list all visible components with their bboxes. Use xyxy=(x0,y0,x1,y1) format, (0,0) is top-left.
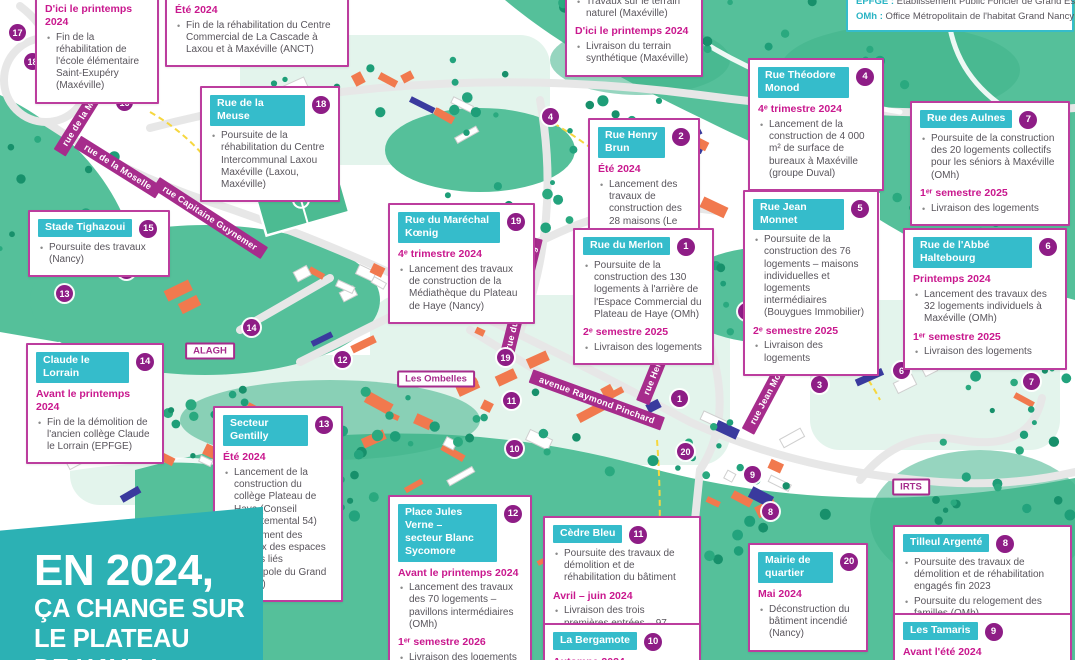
callout-title-row: Rue Henry Brun2 xyxy=(598,127,690,158)
callout-title-row: Rue Théodore Monod4 xyxy=(758,67,874,98)
callout-title-row: Rue des Aulnes7 xyxy=(920,110,1060,129)
bullet-dot: • xyxy=(915,346,924,358)
callout-date-heading: 4ᵉ trimestre 2024 xyxy=(398,248,525,261)
callout-bullet: •Lancement des travaux des 32 logements … xyxy=(915,289,1057,326)
bullet-dot: • xyxy=(47,32,56,93)
callout-title: Les Tamaris xyxy=(903,622,978,640)
callout-number-badge: 20 xyxy=(840,553,858,571)
callout-bullet: •Livraison des logements xyxy=(755,340,869,364)
map-badge-3: 3 xyxy=(811,376,828,393)
hero-line-4: DE HAYE ! xyxy=(34,656,263,660)
bullet-dot: • xyxy=(577,41,586,65)
bullet-text: Poursuite de la construction des 76 loge… xyxy=(764,234,869,319)
bullet-dot: • xyxy=(177,20,186,57)
map-area-label: IRTS xyxy=(892,479,930,496)
callout-claude-le-lorrain: Claude le Lorrain14Avant le printemps 20… xyxy=(26,343,164,464)
bullet-text: Déconstruction du bâtiment incendié (Nan… xyxy=(769,604,858,641)
legend-abbreviation: EPFGE : xyxy=(856,0,894,7)
bullet-dot: • xyxy=(38,417,47,454)
callout-bullet: •Travaux sur le terrain naturel (Maxévil… xyxy=(577,0,693,20)
callout-number-badge: 9 xyxy=(985,623,1003,641)
callout-title: Rue des Aulnes xyxy=(920,110,1012,128)
bullet-text: Lancement des travaux des 70 logements –… xyxy=(409,582,522,631)
callout-number-badge: 10 xyxy=(644,633,662,651)
callout-bullet: •Livraison des logements xyxy=(922,203,1060,215)
callout-rue-du-merlon: Rue du Merlon1•Poursuite de la construct… xyxy=(573,228,714,365)
callout-number-badge: 19 xyxy=(507,213,525,231)
legend-definition: Office Métropolitain de l'habitat Grand … xyxy=(883,11,1074,22)
legend-definition: Établissement Public Foncier de Grand Es… xyxy=(894,0,1075,7)
callout-title: Rue de la Meuse xyxy=(210,95,305,126)
callout-title-row: Secteur Gentilly13 xyxy=(223,415,333,446)
callout-mairie-de-quartier: Mairie de quartier20Mai 2024•Déconstruct… xyxy=(748,543,868,652)
callout-number-badge: 13 xyxy=(315,416,333,434)
bullet-text: Poursuite de la construction des 130 log… xyxy=(594,260,704,321)
callout-date-heading: 2ᵉ semestre 2025 xyxy=(753,325,869,338)
callout-date-heading: Printemps 2024 xyxy=(913,273,1057,286)
callout-title: Rue Théodore Monod xyxy=(758,67,849,98)
plateau-de-haye-map-poster: EPFGE : Établissement Public Foncier de … xyxy=(0,0,1075,660)
callout-la-cascade: Été 2024•Fin de la réhabilitation du Cen… xyxy=(165,0,349,67)
callout-stade-tighazoui: Stade Tighazoui15•Poursuite des travaux … xyxy=(28,210,170,277)
callout-les-tamaris: Les Tamaris9Avant l'été 2024•Désamiantag… xyxy=(893,613,1072,660)
callout-number-badge: 4 xyxy=(856,68,874,86)
callout-title-row: Rue Jean Monnet5 xyxy=(753,199,869,230)
bullet-text: Poursuite des travaux de démolition et d… xyxy=(914,557,1062,594)
callout-bullet: •Livraison des logements xyxy=(400,652,522,660)
callout-rue-theodore-monod: Rue Théodore Monod44ᵉ trimestre 2024•Lan… xyxy=(748,58,884,191)
callout-title: Secteur Gentilly xyxy=(223,415,308,446)
callout-number-badge: 8 xyxy=(996,535,1014,553)
callout-number-badge: 12 xyxy=(504,505,522,523)
bullet-text: Lancement des travaux de construction de… xyxy=(409,264,525,313)
legend-box: EPFGE : Établissement Public Foncier de … xyxy=(846,0,1074,32)
bullet-text: Fin de la réhabilitation du Centre Comme… xyxy=(186,20,339,57)
hero-line-3: LE PLATEAU xyxy=(34,626,263,653)
callout-date-heading: Mai 2024 xyxy=(758,588,858,601)
map-badge-9: 9 xyxy=(744,466,761,483)
callout-date-heading: 1ᵉʳ semestre 2025 xyxy=(913,331,1057,344)
bullet-dot: • xyxy=(915,289,924,326)
callout-la-bergamote: La Bergamote10Automne 2024 xyxy=(543,623,701,660)
map-badge-14: 14 xyxy=(243,319,260,336)
bullet-text: Poursuite des travaux (Nancy) xyxy=(49,242,160,266)
map-badge-20: 20 xyxy=(677,443,694,460)
callout-rue-du-marechal-koenig: Rue du Maréchal Kœnig194ᵉ trimestre 2024… xyxy=(388,203,535,324)
callout-title-row: La Bergamote10 xyxy=(553,632,691,651)
callout-number-badge: 5 xyxy=(851,200,869,218)
callout-bullet: •Lancement des travaux des 70 logements … xyxy=(400,582,522,631)
callout-bullet: •Poursuite des travaux (Nancy) xyxy=(40,242,160,266)
bullet-dot: • xyxy=(922,203,931,215)
callout-bullet: •Poursuite de la construction des 20 log… xyxy=(922,133,1060,182)
bullet-text: Livraison des logements xyxy=(594,342,704,354)
callout-rue-de-la-meuse: Rue de la Meuse18•Poursuite de la réhabi… xyxy=(200,86,340,202)
legend-abbreviation: OMh : xyxy=(856,11,883,22)
callout-title-row: Mairie de quartier20 xyxy=(758,552,858,583)
map-badge-11: 11 xyxy=(503,392,520,409)
callout-bullet: •Poursuite de la construction des 130 lo… xyxy=(585,260,704,321)
callout-title: Rue du Maréchal Kœnig xyxy=(398,212,500,243)
bullet-text: Livraison des logements xyxy=(409,652,522,660)
map-badge-13: 13 xyxy=(56,285,73,302)
bullet-text: Lancement des travaux des 32 logements i… xyxy=(924,289,1057,326)
callout-number-badge: 14 xyxy=(136,353,154,371)
callout-title: Mairie de quartier xyxy=(758,552,833,583)
callout-title-row: Rue du Merlon1 xyxy=(583,237,704,256)
callout-number-badge: 11 xyxy=(629,526,647,544)
bullet-text: Fin de la réhabilitation de l'école élém… xyxy=(56,32,149,93)
callout-date-heading: Été 2024 xyxy=(223,451,333,464)
bullet-dot: • xyxy=(400,264,409,313)
bullet-dot: • xyxy=(400,582,409,631)
callout-bullet: •Poursuite des travaux de démolition et … xyxy=(555,548,691,585)
callout-title-row: Tilleul Argenté8 xyxy=(903,534,1062,553)
callout-date-heading: 4ᵉ trimestre 2024 xyxy=(758,103,874,116)
callout-title: Claude le Lorrain xyxy=(36,352,129,383)
callout-terrain-naturel: •Travaux sur le terrain naturel (Maxévil… xyxy=(565,0,703,77)
callout-number-badge: 6 xyxy=(1039,238,1057,256)
bullet-text: Poursuite des travaux de démolition et d… xyxy=(564,548,691,585)
callout-rue-de-l-abbe-haltebourg: Rue de l'Abbé Haltebourg6Printemps 2024•… xyxy=(903,228,1067,370)
callout-date-heading: 1ᵉʳ semestre 2025 xyxy=(920,187,1060,200)
bullet-dot: • xyxy=(755,234,764,319)
bullet-dot: • xyxy=(760,119,769,180)
callout-title: Cèdre Bleu xyxy=(553,525,622,543)
map-area-label: ALAGH xyxy=(185,343,235,360)
callout-title: Rue Henry Brun xyxy=(598,127,665,158)
bullet-dot: • xyxy=(577,0,586,20)
callout-date-heading: Avant le printemps 2024 xyxy=(398,567,522,580)
callout-title-row: Cèdre Bleu11 xyxy=(553,525,691,544)
callout-title: Stade Tighazoui xyxy=(38,219,132,237)
callout-date-heading: Été 2024 xyxy=(598,163,690,176)
map-area-label: Les Ombelles xyxy=(397,371,475,388)
bullet-text: Livraison des logements xyxy=(924,346,1057,358)
callout-bullet: •Lancement de la construction de 4 000 m… xyxy=(760,119,874,180)
callout-title: Place Jules Verne –secteur Blanc Sycomor… xyxy=(398,504,497,562)
callout-date-heading: Automne 2024 xyxy=(553,656,691,660)
bullet-text: Poursuite de la réhabilitation du Centre… xyxy=(221,130,330,191)
callout-bullet: •Livraison des logements xyxy=(915,346,1057,358)
callout-date-heading: Avant le printemps 2024 xyxy=(36,388,154,414)
callout-date-heading: 1ᵉʳ semestre 2026 xyxy=(398,636,522,649)
bullet-text: Livraison des logements xyxy=(931,203,1060,215)
bullet-text: Travaux sur le terrain naturel (Maxévill… xyxy=(586,0,693,20)
map-badge-8: 8 xyxy=(762,503,779,520)
callout-bullet: •Déconstruction du bâtiment incendié (Na… xyxy=(760,604,858,641)
callout-title-row: Rue du Maréchal Kœnig19 xyxy=(398,212,525,243)
map-badge-19: 19 xyxy=(497,349,514,366)
callout-bullet: •Poursuite des travaux de démolition et … xyxy=(905,557,1062,594)
callout-date-heading: D'ici le printemps 2024 xyxy=(575,25,693,38)
callout-title-row: Rue de la Meuse18 xyxy=(210,95,330,126)
callout-number-badge: 15 xyxy=(139,220,157,238)
hero-line-2: ÇA CHANGE SUR xyxy=(34,596,263,623)
callout-number-badge: 2 xyxy=(672,128,690,146)
bullet-dot: • xyxy=(555,548,564,585)
bullet-text: Livraison des logements xyxy=(764,340,869,364)
callout-rue-jean-monnet: Rue Jean Monnet5•Poursuite de la constru… xyxy=(743,190,879,376)
callout-date-heading: Été 2024 xyxy=(175,4,339,17)
callout-title: Rue de l'Abbé Haltebourg xyxy=(913,237,1032,268)
map-badge-17: 17 xyxy=(9,24,26,41)
map-badge-1: 1 xyxy=(671,390,688,407)
bullet-dot: • xyxy=(212,130,221,191)
callout-title-row: Les Tamaris9 xyxy=(903,622,1062,641)
callout-title: Rue du Merlon xyxy=(583,237,670,255)
map-badge-7: 7 xyxy=(1023,373,1040,390)
bullet-dot: • xyxy=(585,342,594,354)
callout-place-jules-verne: Place Jules Verne –secteur Blanc Sycomor… xyxy=(388,495,532,660)
bullet-dot: • xyxy=(760,604,769,641)
callout-title-row: Place Jules Verne –secteur Blanc Sycomor… xyxy=(398,504,522,562)
map-badge-4: 4 xyxy=(542,108,559,125)
legend-item-2: OMh : Office Métropolitain de l'habitat … xyxy=(856,10,1064,25)
bullet-dot: • xyxy=(905,557,914,594)
callout-ecole-saint-exupery: D'ici le printemps 2024•Fin de la réhabi… xyxy=(35,0,159,104)
callout-bullet: •Fin de la réhabilitation du Centre Comm… xyxy=(177,20,339,57)
callout-title-row: Stade Tighazoui15 xyxy=(38,219,160,238)
bullet-text: Livraison du terrain synthétique (Maxévi… xyxy=(586,41,693,65)
bullet-dot: • xyxy=(755,340,764,364)
callout-bullet: •Lancement des travaux de construction d… xyxy=(400,264,525,313)
hero-line-1: EN 2024, xyxy=(34,549,263,593)
bullet-dot: • xyxy=(400,652,409,660)
callout-number-badge: 7 xyxy=(1019,111,1037,129)
map-badge-12: 12 xyxy=(334,351,351,368)
callout-bullet: •Fin de la démolition de l'ancien collèg… xyxy=(38,417,154,454)
callout-rue-des-aulnes: Rue des Aulnes7•Poursuite de la construc… xyxy=(910,101,1070,226)
callout-date-heading: D'ici le printemps 2024 xyxy=(45,3,149,29)
callout-bullet: •Livraison du terrain synthétique (Maxév… xyxy=(577,41,693,65)
callout-date-heading: Avant l'été 2024 xyxy=(903,646,1062,659)
callout-number-badge: 1 xyxy=(677,238,695,256)
callout-bullet: •Fin de la réhabilitation de l'école élé… xyxy=(47,32,149,93)
bullet-dot: • xyxy=(922,133,931,182)
callout-title: Tilleul Argenté xyxy=(903,534,989,552)
callout-bullet: •Poursuite de la réhabilitation du Centr… xyxy=(212,130,330,191)
callout-bullet: •Livraison des logements xyxy=(585,342,704,354)
bullet-dot: • xyxy=(40,242,49,266)
bullet-dot: • xyxy=(585,260,594,321)
callout-bullet: •Poursuite de la construction des 76 log… xyxy=(755,234,869,319)
legend-item-1: EPFGE : Établissement Public Foncier de … xyxy=(856,0,1064,10)
bullet-text: Fin de la démolition de l'ancien collège… xyxy=(47,417,154,454)
bullet-text: Poursuite de la construction des 20 loge… xyxy=(931,133,1060,182)
callout-title-row: Claude le Lorrain14 xyxy=(36,352,154,383)
callout-date-heading: Avril – juin 2024 xyxy=(553,590,691,603)
callout-title: La Bergamote xyxy=(553,632,637,650)
callout-title: Rue Jean Monnet xyxy=(753,199,844,230)
bullet-text: Lancement de la construction de 4 000 m²… xyxy=(769,119,874,180)
callout-date-heading: 2ᵉ semestre 2025 xyxy=(583,326,704,339)
map-badge-10: 10 xyxy=(506,440,523,457)
callout-number-badge: 18 xyxy=(312,96,330,114)
callout-title-row: Rue de l'Abbé Haltebourg6 xyxy=(913,237,1057,268)
